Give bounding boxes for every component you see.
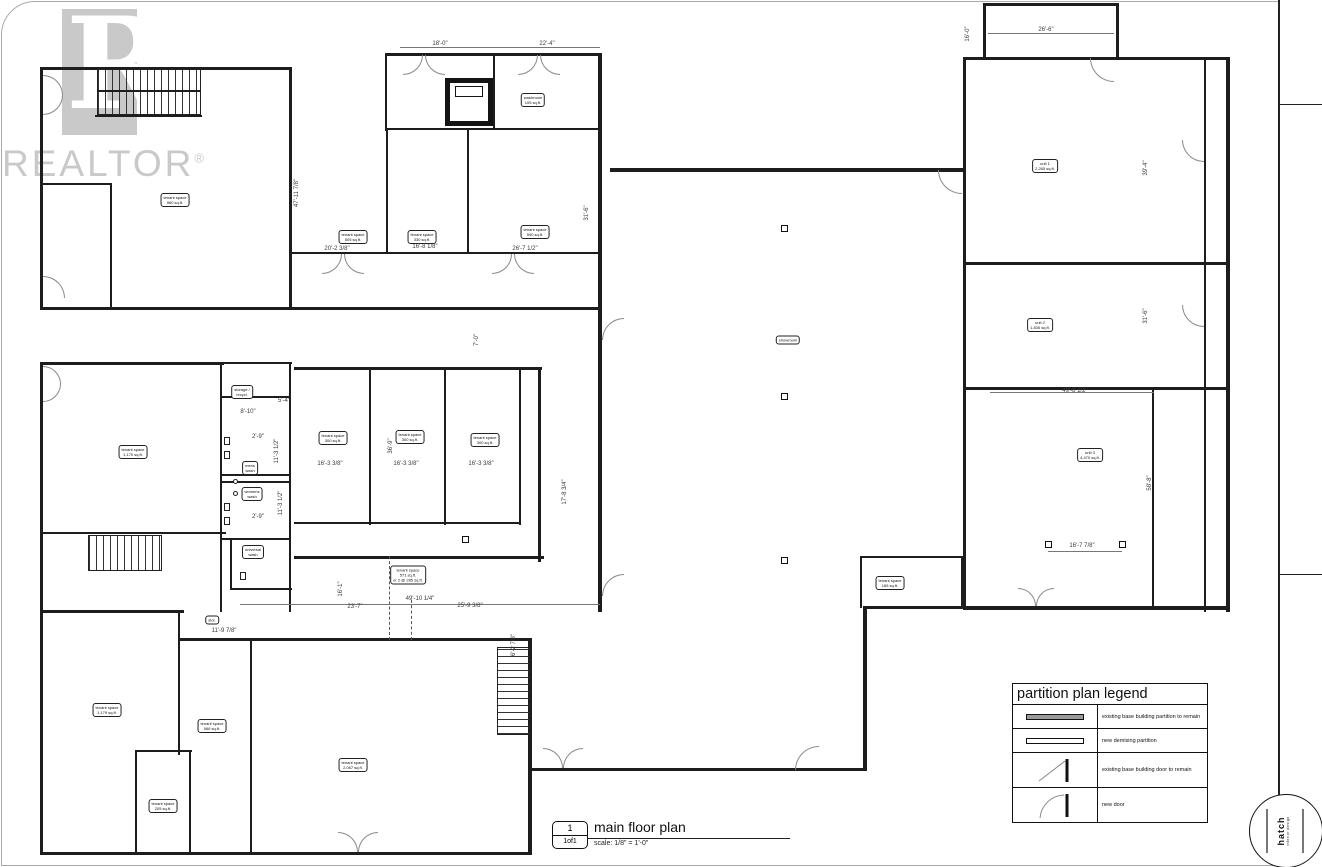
wall (110, 183, 112, 310)
wall (220, 362, 292, 364)
wall (294, 556, 544, 559)
toilet-fixture (224, 451, 230, 459)
wall (983, 3, 986, 59)
room-label: tenant space 590 sq.ft. (521, 225, 550, 239)
room-label: universal wash (242, 545, 264, 559)
legend-symbol-new-demising-partition (1013, 729, 1098, 752)
room-label: tenant space 300 sq.ft. (319, 431, 348, 445)
wall (467, 129, 469, 254)
wall (1116, 3, 1119, 59)
stairs (97, 69, 201, 115)
door-swing-icon (543, 748, 563, 768)
column-marker (781, 557, 788, 564)
title-block-divider (1278, 574, 1322, 575)
new-partition-icon (1026, 738, 1084, 744)
title-block-border (1278, 0, 1280, 867)
wall (1204, 57, 1206, 612)
wall (40, 610, 43, 855)
wall (230, 538, 232, 590)
dimension-line (1048, 551, 1122, 552)
dimension-text: 17'-8 3/4" (562, 479, 568, 504)
wall (135, 750, 192, 752)
door-swing-icon (344, 254, 364, 274)
wall (40, 362, 224, 365)
wall (289, 67, 292, 310)
room-label: womens wash (242, 487, 263, 501)
wall (369, 367, 371, 525)
toilet-fixture (240, 572, 246, 580)
column-marker (781, 393, 788, 400)
stairs (497, 647, 530, 735)
room-label: unit 3 4,470 sq.ft. (1077, 448, 1103, 462)
wall (963, 387, 1228, 390)
wall (178, 610, 180, 640)
room-label: tenant space 1,179 sq.ft. (93, 703, 122, 717)
room-label: tenant space 205 sq.ft. (149, 799, 178, 813)
dimension-line (240, 604, 600, 605)
dimension-text: 16'-7 7/8" (1069, 543, 1094, 549)
wall (493, 53, 495, 130)
legend-symbol-existing-door (1013, 753, 1098, 787)
drawing-number-bubble: 1 1of1 (552, 821, 588, 849)
wall (963, 606, 1230, 610)
stairs (88, 535, 162, 571)
wall (95, 115, 202, 117)
existing-door-icon (1027, 756, 1083, 784)
wall (860, 556, 965, 558)
wall (180, 638, 530, 641)
drawing-number: 1 (553, 822, 587, 836)
legend-label: new door (1098, 799, 1207, 811)
door-swing-icon (1036, 588, 1054, 606)
room-label: tenant space 505 sq.ft. (339, 230, 368, 244)
door-swing-icon (563, 748, 583, 768)
wall (385, 53, 387, 131)
wall (135, 750, 137, 854)
door-swing-icon (602, 318, 624, 340)
new-door-icon (1027, 791, 1083, 819)
door-swing-icon (338, 832, 358, 852)
door-swing-icon (492, 254, 512, 274)
dimension-text: 2'-9" (252, 514, 264, 520)
room-label: tenant space 2,067 sq.ft. (339, 758, 368, 772)
dimension-text: 49'-10 1/4" (406, 596, 435, 602)
room-label: stor. (205, 616, 219, 625)
toilet-fixture (224, 437, 230, 445)
wall (444, 367, 446, 525)
toilet-fixture (224, 517, 230, 525)
room-label: tenant space 330 sq.ft. (408, 230, 437, 244)
legend-title: partition plan legend (1013, 684, 1207, 705)
room-label: unit 2 1,835 sq.ft. (1027, 318, 1053, 332)
wall (294, 367, 542, 370)
door-swing-icon (602, 574, 624, 596)
wall (1226, 57, 1230, 612)
column-marker (781, 225, 788, 232)
dimension-text: 2'-9" (252, 434, 264, 440)
dimension-line (400, 47, 600, 48)
door-swing-icon (43, 75, 63, 95)
dimension-text: 39'-4" (1143, 160, 1149, 175)
column-marker (1045, 541, 1052, 548)
wall (386, 129, 388, 254)
wall (250, 638, 252, 855)
dimension-text: 20'-2 3/8" (324, 246, 349, 252)
drawing-title-text: main floor plan (594, 819, 686, 835)
door-swing-icon (403, 55, 423, 75)
door-swing-icon (540, 55, 560, 75)
door-swing-icon (514, 254, 534, 274)
stamp-rule (1302, 809, 1304, 853)
room-label: tenant space 300 sq.ft. (471, 433, 500, 447)
dimension-text: 26'-7 1/2" (512, 246, 537, 252)
door-swing-icon (938, 170, 962, 194)
dimension-text: 16'-0" (965, 26, 971, 41)
wall (598, 53, 602, 612)
dimension-text: 47'-11 7/8" (294, 179, 300, 207)
door-swing-icon (518, 55, 538, 75)
wall (189, 750, 191, 854)
room-label: tenant space 566 sq.ft. (198, 719, 227, 733)
drawing-sheet-ref: 1of1 (553, 836, 587, 847)
door-swing-icon (43, 384, 61, 402)
demising-dashed-line (411, 600, 412, 640)
dimension-text: 18'-0" (432, 41, 447, 47)
wall (40, 532, 226, 534)
dimension-text: 31'-6" (1143, 308, 1149, 323)
drawing-scale-text: scale: 1/8" = 1'-0" (594, 840, 648, 847)
title-block (1278, 0, 1322, 867)
dimension-text: 11'-9 7/8" (212, 628, 237, 634)
stamp-name: hatch (1276, 805, 1286, 857)
floor-plan-sheet: R REALTOR® tenant space 960 sq.ft.tenant… (0, 0, 1322, 867)
stair-landing-divider (97, 90, 201, 92)
dimension-line (988, 33, 1114, 34)
column-marker (1119, 541, 1126, 548)
stamp-subtitle: interior design (1286, 805, 1290, 857)
room-label: tenant space 165 sq.ft. (876, 576, 905, 590)
wall (385, 128, 600, 130)
wall (963, 262, 1228, 265)
wall (610, 168, 966, 172)
wall (538, 367, 541, 562)
dimension-text: 16'-1" (338, 581, 344, 596)
wall (40, 852, 532, 855)
wall (40, 307, 602, 310)
room-label: tenant space 571 sq.ft. or 2 @ 285 sq.ft… (390, 566, 426, 585)
dimension-text: 31'-6" (584, 205, 590, 220)
title-block-divider (1278, 104, 1322, 105)
room-label: washroom 105 sq.ft. (521, 93, 545, 107)
wall (863, 608, 867, 771)
column-marker (462, 536, 469, 543)
door-swing-icon (43, 366, 61, 384)
room-label: tenant space 1,170 sq.ft. (119, 445, 148, 459)
legend-symbol-new-door (1013, 788, 1098, 822)
wall (983, 3, 1118, 6)
dimension-text: 16'-3 3/8" (393, 461, 418, 467)
dimension-text: 22'-4" (539, 41, 554, 47)
door-swing-icon (322, 254, 342, 274)
legend-row: existing base building partition to rema… (1013, 705, 1207, 729)
wall (40, 610, 184, 613)
dimension-text: 7'-0" (474, 334, 480, 346)
legend-row: new door (1013, 788, 1207, 822)
designer-stamp: hatch interior design (1249, 794, 1322, 867)
legend-row: existing base building door to remain (1013, 753, 1207, 788)
legend-symbol-existing-partition (1013, 705, 1098, 728)
wall (220, 362, 222, 612)
legend-label: existing base building door to remain (1098, 764, 1207, 776)
dimension-text: 49'-8 1/2" (1062, 388, 1087, 394)
stamp-rule (1266, 809, 1268, 853)
dimension-text: 8'-10" (240, 409, 255, 415)
wall (519, 367, 521, 525)
sink-fixture (233, 491, 238, 496)
dimension-text: 16'-3 3/8" (468, 461, 493, 467)
dimension-text: 11'-3 1/2" (278, 491, 284, 516)
wall (963, 57, 966, 610)
door-swing-icon (425, 55, 445, 75)
existing-partition-icon (1026, 714, 1084, 720)
door-swing-icon (358, 832, 378, 852)
dimension-text: 6'-2 7/8" (511, 634, 517, 656)
wall (863, 606, 965, 609)
partition-plan-legend: partition plan legend existing base buil… (1012, 683, 1208, 823)
room-label: storage / recycl. (231, 385, 253, 399)
door-swing-icon (1182, 305, 1204, 327)
room-label: mens wash (242, 461, 258, 475)
elevator-shaft (445, 78, 493, 126)
door-swing-icon (1018, 588, 1036, 606)
wall (860, 556, 862, 608)
toilet-fixture (224, 503, 230, 511)
door-swing-icon (43, 95, 63, 115)
wall (178, 638, 180, 755)
dimension-text: 11'-3 1/2" (274, 439, 280, 464)
door-swing-icon (1090, 58, 1114, 82)
legend-label: existing base building partition to rema… (1098, 711, 1207, 723)
dimension-text: 16'-3 3/8" (317, 461, 342, 467)
wall (1152, 389, 1154, 608)
legend-label: new demising partition (1098, 735, 1207, 747)
wall (222, 538, 290, 540)
wall (230, 588, 292, 590)
dimension-text: 5'-4" (278, 398, 290, 404)
dimension-text: 36'-9" (388, 438, 394, 453)
dimension-text: 25'-9 3/8" (457, 603, 482, 609)
wall (40, 183, 112, 185)
wall (294, 522, 521, 524)
dimension-text: 23'-7" (347, 604, 362, 610)
room-label: tenant space 960 sq.ft. (161, 193, 190, 207)
door-swing-icon (795, 746, 819, 770)
stamp-text: hatch interior design (1276, 805, 1290, 857)
dimension-text: 16'-8 1/8" (412, 244, 437, 250)
dimension-text: 58'-8" (1147, 475, 1153, 490)
dimension-text: 26'-6" (1038, 27, 1053, 33)
elevator-car (455, 86, 483, 97)
room-label: tenant space 300 sq.ft. (396, 430, 425, 444)
sink-fixture (233, 479, 238, 484)
door-swing-icon (1182, 140, 1204, 162)
room-label: showroom (776, 336, 800, 345)
legend-row: new demising partition (1013, 729, 1207, 753)
door-swing-icon (43, 276, 65, 298)
room-label: unit 1 2,265 sq.ft. (1032, 159, 1058, 173)
